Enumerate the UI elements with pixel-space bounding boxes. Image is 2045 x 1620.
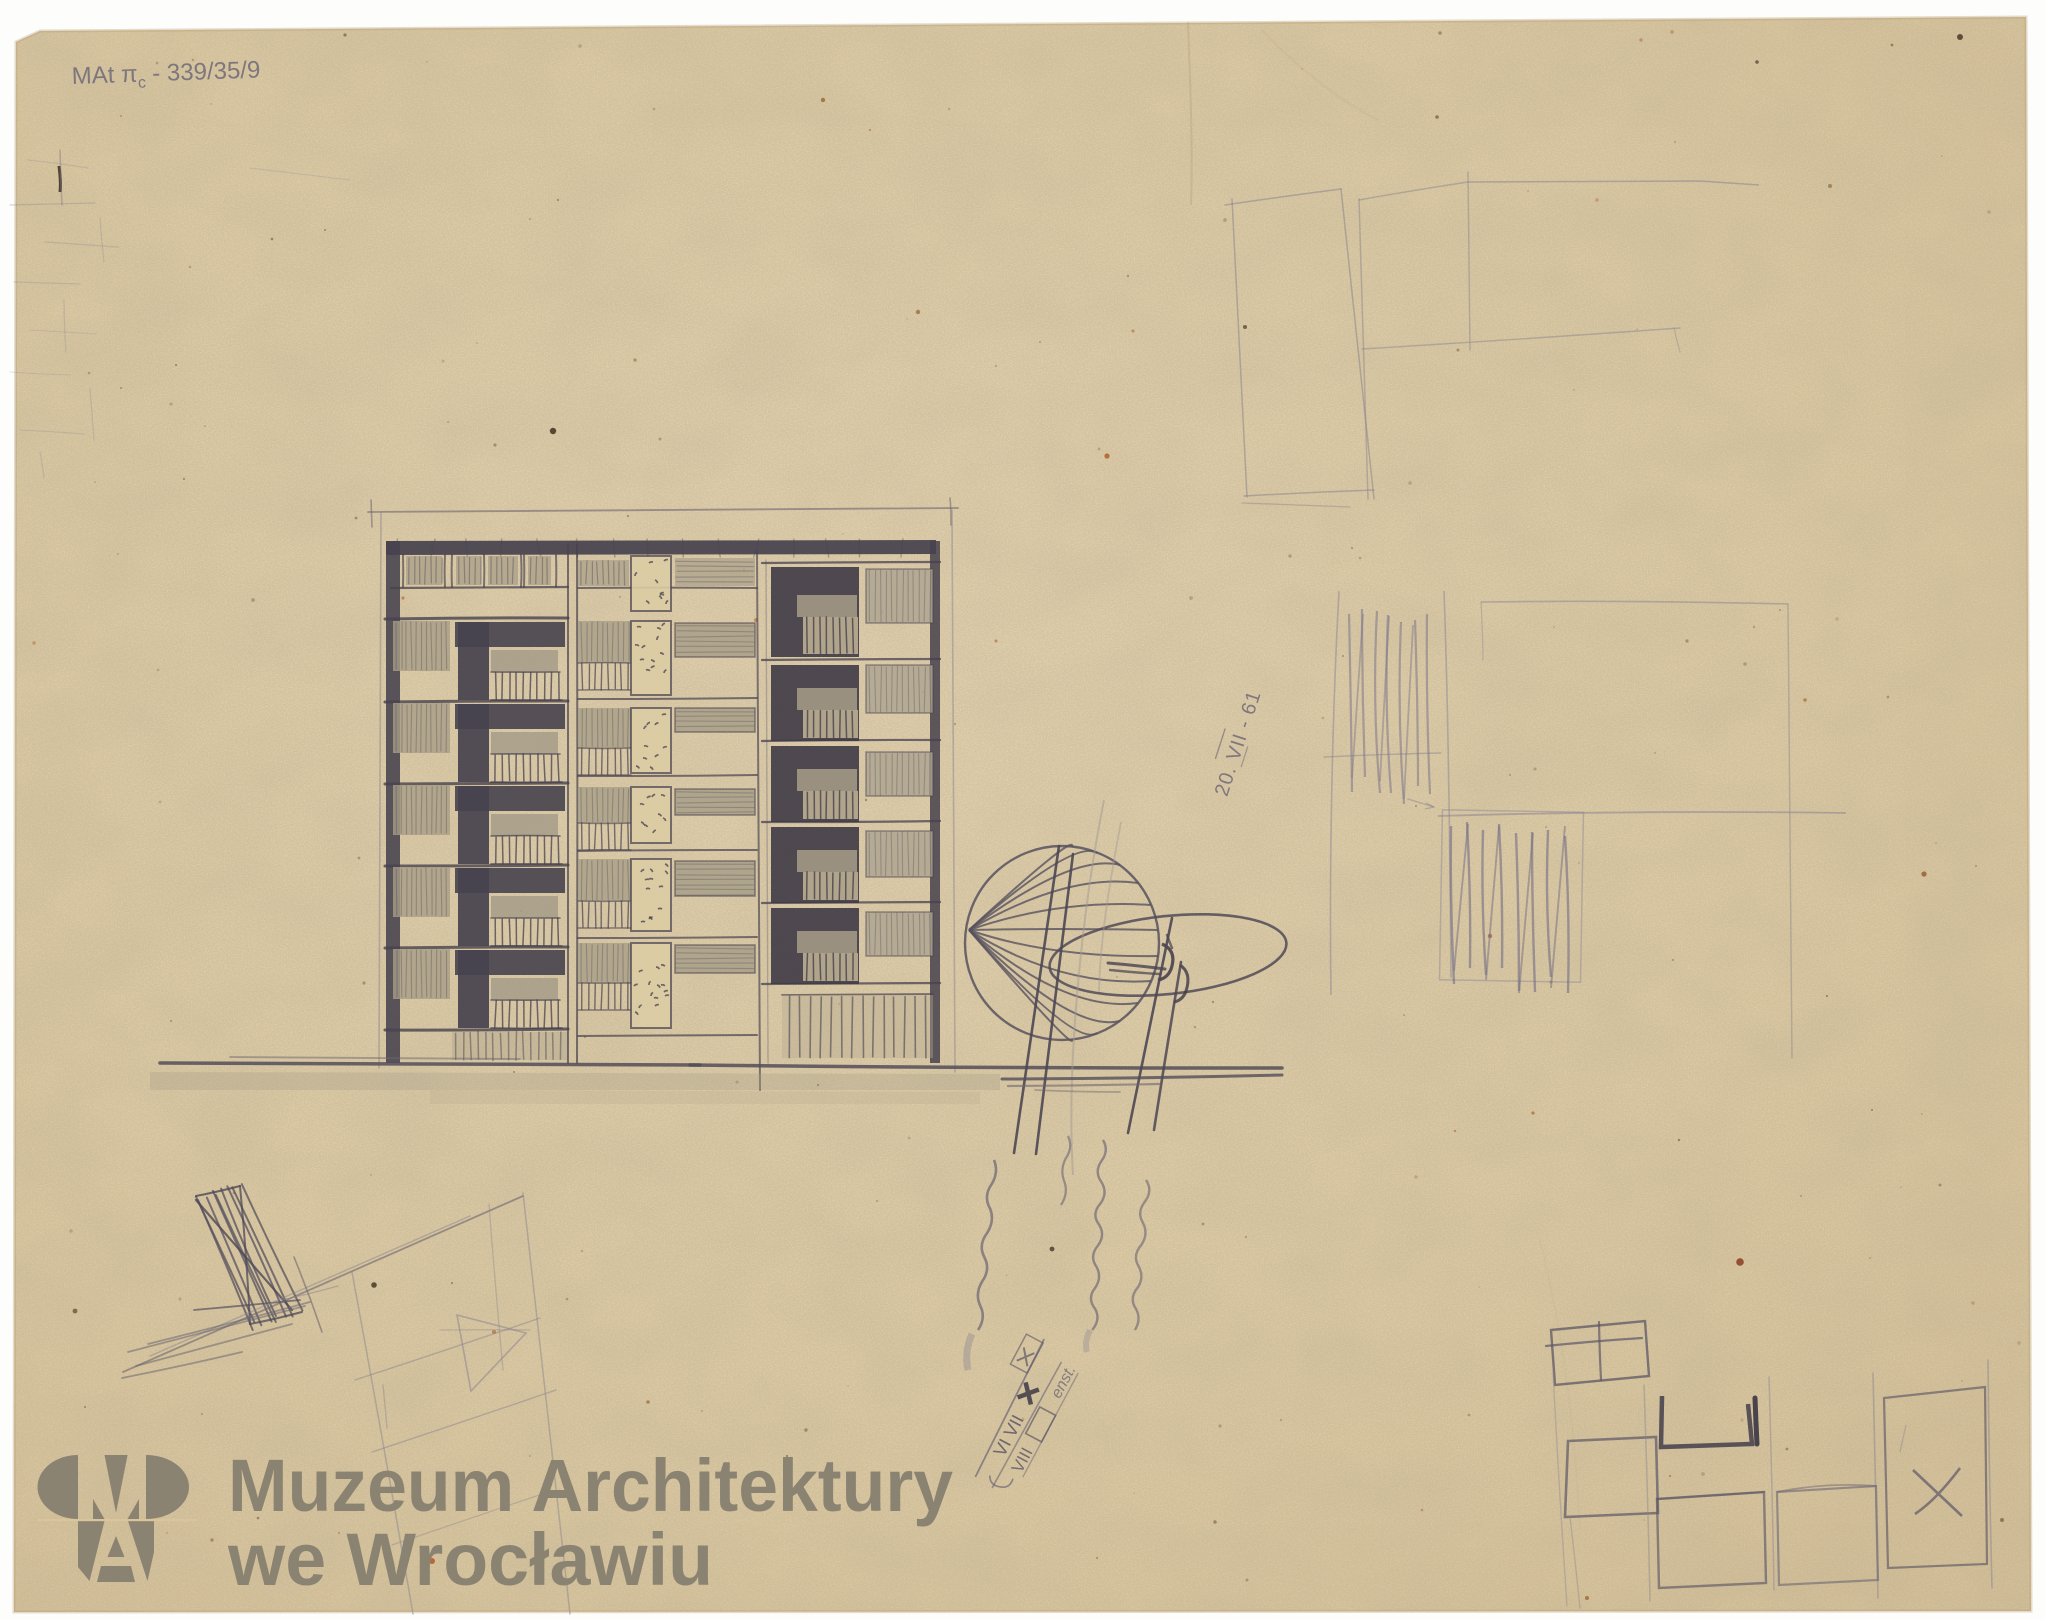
svg-text:Muzeum Architektury: Muzeum Architektury bbox=[228, 1444, 953, 1527]
svg-text:we Wrocławiu: we Wrocławiu bbox=[227, 1518, 713, 1601]
